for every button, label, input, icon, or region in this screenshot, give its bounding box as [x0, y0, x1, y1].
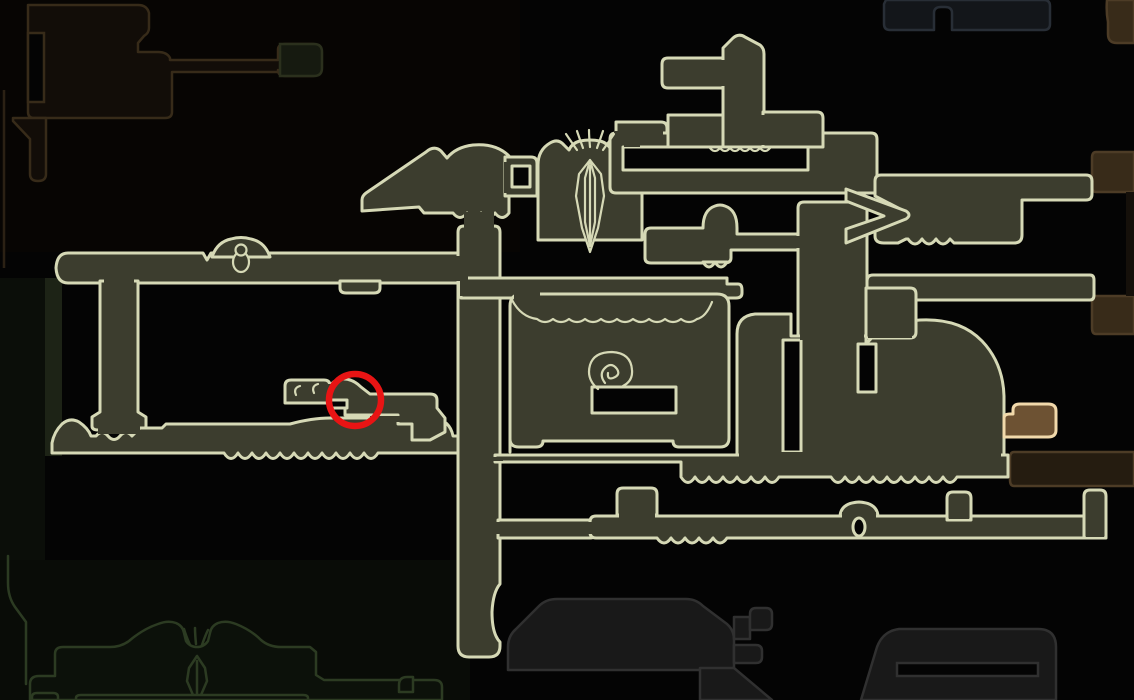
- room-left-column: [92, 281, 146, 430]
- map-screen: [0, 0, 1134, 700]
- band-scallop-a: [703, 262, 715, 267]
- brown-room-upper: [1092, 152, 1134, 192]
- settlement-door-slot: [28, 33, 44, 102]
- gray-mound: [508, 599, 734, 670]
- brown-edge-strip: [1126, 192, 1134, 296]
- room-tower: [723, 35, 764, 147]
- room-tower-arm: [662, 58, 723, 88]
- brown-room-lower: [1092, 296, 1134, 334]
- brown-band-lower-right: [1010, 452, 1134, 486]
- gray-arm-block-lower: [734, 645, 762, 663]
- room-blob-right: [875, 175, 1092, 244]
- center-room-inner-platform: [592, 387, 676, 413]
- gray-mound-tail: [700, 668, 772, 700]
- link-shaft-band: [498, 520, 596, 538]
- green-arc-room: [399, 677, 413, 692]
- settlement-cap-room: [280, 44, 322, 76]
- corridor-tab: [340, 281, 380, 293]
- window-hole: [512, 166, 530, 187]
- green-room-small: [32, 693, 58, 700]
- green-room-wide: [76, 695, 308, 700]
- room-center-big: [510, 294, 729, 452]
- lower-band-block: [617, 488, 657, 515]
- background-panel-left: [0, 278, 45, 560]
- map-canvas: [0, 0, 1134, 700]
- zone-gray-bottom-center: [508, 599, 1056, 700]
- room-tall-block: [798, 202, 867, 338]
- room-circled-small: [285, 380, 330, 403]
- dark-room-outline: [884, 0, 1050, 30]
- arch-door: [853, 518, 865, 536]
- highlighted-room: [1004, 404, 1056, 437]
- zone-dark-room-top: [884, 0, 1050, 30]
- egg-ornament-ring: [236, 245, 247, 256]
- brown-corner-room: [1107, 0, 1134, 43]
- dome-slot-left: [783, 340, 801, 452]
- corridor-band-mid: [645, 205, 798, 263]
- gray-swoop-notch: [897, 663, 1038, 676]
- band-scallop-b: [715, 262, 727, 267]
- room-tower-right-block: [763, 112, 823, 147]
- dome-slot-right: [858, 344, 876, 392]
- gray-arm-block-upper: [750, 608, 772, 630]
- gray-arm: [734, 617, 750, 639]
- corridor-lower-band: [590, 516, 1086, 543]
